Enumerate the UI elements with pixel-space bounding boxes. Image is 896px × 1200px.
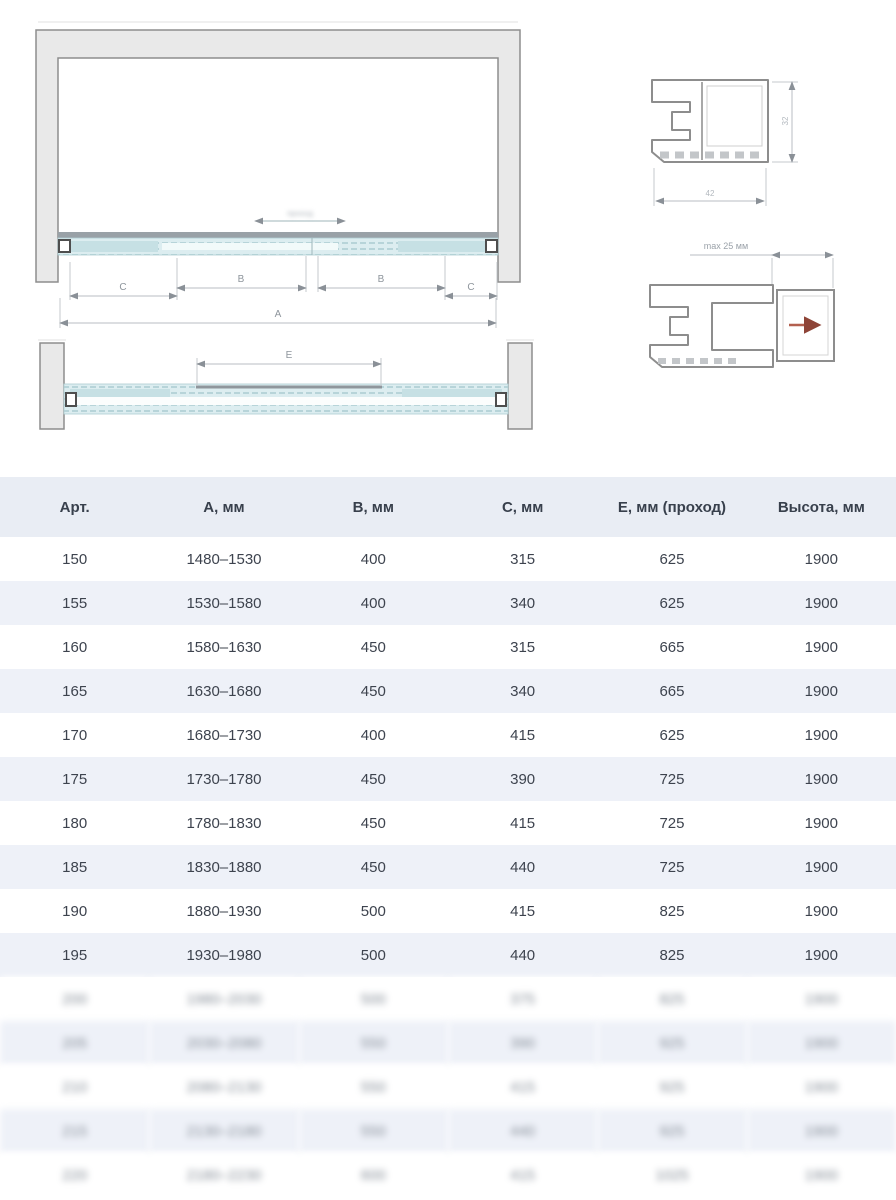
table-cell: 500 xyxy=(299,933,448,977)
header-c: С, мм xyxy=(448,477,597,537)
table-cell: 1900 xyxy=(747,1153,896,1197)
table-cell: 1980–2030 xyxy=(149,977,298,1021)
table-cell: 205 xyxy=(0,1021,149,1065)
table-cell: 450 xyxy=(299,801,448,845)
table-cell: 1900 xyxy=(747,713,896,757)
table-cell: 440 xyxy=(448,1109,597,1153)
table-cell: 415 xyxy=(448,1153,597,1197)
obscured-dimension-label: проход xyxy=(287,209,313,218)
profile-section-main: 32 42 xyxy=(652,80,798,206)
table-cell: 825 xyxy=(597,977,746,1021)
end-bracket-right xyxy=(486,240,497,252)
fixed-glass-right xyxy=(398,241,494,252)
table-cell: 415 xyxy=(448,801,597,845)
table-cell: 1900 xyxy=(747,669,896,713)
dim-profile-width-label: 42 xyxy=(706,189,715,198)
top-rail xyxy=(58,232,498,238)
table-row: 1951930–19805004408251900 xyxy=(0,933,896,977)
table-cell: 1530–1580 xyxy=(149,581,298,625)
table-cell: 665 xyxy=(597,625,746,669)
dim-c-left-label: С xyxy=(119,282,126,293)
e-extension-ticks xyxy=(197,358,381,386)
table-cell: 625 xyxy=(597,713,746,757)
table-cell: 725 xyxy=(597,801,746,845)
table-cell: 725 xyxy=(597,845,746,889)
table-row: 1651630–16804503406651900 xyxy=(0,669,896,713)
table-cell: 400 xyxy=(299,537,448,581)
header-b: В, мм xyxy=(299,477,448,537)
table-cell: 415 xyxy=(448,1065,597,1109)
table-row: 2052030–20805503909251900 xyxy=(0,1021,896,1065)
table-row: 1601580–16304503156651900 xyxy=(0,625,896,669)
table-cell: 1900 xyxy=(747,801,896,845)
table-cell: 450 xyxy=(299,625,448,669)
table-row: 1901880–19305004158251900 xyxy=(0,889,896,933)
table-cell: 340 xyxy=(448,581,597,625)
table-cell: 725 xyxy=(597,757,746,801)
table-cell: 1880–1930 xyxy=(149,889,298,933)
table-row: 2202180–223060041510251900 xyxy=(0,1153,896,1197)
table-cell: 925 xyxy=(597,1065,746,1109)
table-cell: 1680–1730 xyxy=(149,713,298,757)
table-cell: 1900 xyxy=(747,1065,896,1109)
table-cell: 925 xyxy=(597,1109,746,1153)
table-cell: 315 xyxy=(448,625,597,669)
table-cell: 825 xyxy=(597,889,746,933)
table-cell: 450 xyxy=(299,845,448,889)
table-cell: 1630–1680 xyxy=(149,669,298,713)
size-table: Арт. А, мм В, мм С, мм Е, мм (проход) Вы… xyxy=(0,477,896,1197)
table-row: 2152130–21805504409251900 xyxy=(0,1109,896,1153)
table-cell: 1900 xyxy=(747,889,896,933)
technical-drawing-area: проход С В В С xyxy=(0,0,896,477)
header-e: Е, мм (проход) xyxy=(597,477,746,537)
table-cell: 200 xyxy=(0,977,149,1021)
wall-stub-right xyxy=(508,343,532,429)
table-cell: 1580–1630 xyxy=(149,625,298,669)
dim-b-right-label: В xyxy=(378,274,385,285)
fixed-panel-right-plan xyxy=(402,389,502,397)
glass-gap xyxy=(72,397,500,405)
table-cell: 1480–1530 xyxy=(149,537,298,581)
table-cell: 500 xyxy=(299,889,448,933)
table-cell: 1900 xyxy=(747,933,896,977)
dim-profile-height-label: 32 xyxy=(781,116,790,125)
table-cell: 195 xyxy=(0,933,149,977)
table-cell: 2030–2080 xyxy=(149,1021,298,1065)
table-cell: 160 xyxy=(0,625,149,669)
table-cell: 170 xyxy=(0,713,149,757)
wall-stub-left xyxy=(40,343,64,429)
table-cell: 1025 xyxy=(597,1153,746,1197)
table-cell: 315 xyxy=(448,537,597,581)
table-cell: 550 xyxy=(299,1021,448,1065)
size-table-header: Арт. А, мм В, мм С, мм Е, мм (проход) Вы… xyxy=(0,477,896,537)
fixed-panel-left-plan xyxy=(70,389,170,397)
table-cell: 1900 xyxy=(747,1109,896,1153)
table-row: 2001980–20305003758251900 xyxy=(0,977,896,1021)
table-cell: 340 xyxy=(448,669,597,713)
table-cell: 1780–1830 xyxy=(149,801,298,845)
table-cell: 150 xyxy=(0,537,149,581)
table-cell: 1830–1880 xyxy=(149,845,298,889)
table-cell: 625 xyxy=(597,537,746,581)
table-cell: 450 xyxy=(299,669,448,713)
table-cell: 450 xyxy=(299,757,448,801)
table-cell: 665 xyxy=(597,669,746,713)
table-cell: 190 xyxy=(0,889,149,933)
table-row: 1501480–15304003156251900 xyxy=(0,537,896,581)
table-cell: 1900 xyxy=(747,537,896,581)
table-cell: 925 xyxy=(597,1021,746,1065)
dim-b-left-label: В xyxy=(238,274,245,285)
table-cell: 2080–2130 xyxy=(149,1065,298,1109)
table-cell: 825 xyxy=(597,933,746,977)
table-cell: 175 xyxy=(0,757,149,801)
table-cell: 375 xyxy=(448,977,597,1021)
front-view-drawing: проход С В В С xyxy=(36,22,520,328)
header-art: Арт. xyxy=(0,477,149,537)
table-cell: 185 xyxy=(0,845,149,889)
drawings-svg: проход С В В С xyxy=(0,0,896,477)
profile-section-adjustable: max 25 мм xyxy=(650,241,834,367)
table-cell: 1900 xyxy=(747,977,896,1021)
table-cell: 1730–1780 xyxy=(149,757,298,801)
table-cell: 550 xyxy=(299,1109,448,1153)
header-height: Высота, мм xyxy=(747,477,896,537)
table-cell: 1900 xyxy=(747,757,896,801)
table-row: 1801780–18304504157251900 xyxy=(0,801,896,845)
table-cell: 415 xyxy=(448,889,597,933)
table-cell: 1900 xyxy=(747,625,896,669)
table-cell: 500 xyxy=(299,977,448,1021)
table-cell: 1900 xyxy=(747,581,896,625)
wall-profile-outline xyxy=(652,80,768,162)
table-row: 1701680–17304004156251900 xyxy=(0,713,896,757)
dim-c-right-label: С xyxy=(467,282,474,293)
plan-bracket-left xyxy=(66,393,76,406)
table-cell: 550 xyxy=(299,1065,448,1109)
table-cell: 390 xyxy=(448,757,597,801)
table-cell: 415 xyxy=(448,713,597,757)
end-bracket-left xyxy=(59,240,70,252)
table-cell: 600 xyxy=(299,1153,448,1197)
table-cell: 180 xyxy=(0,801,149,845)
table-cell: 220 xyxy=(0,1153,149,1197)
table-cell: 165 xyxy=(0,669,149,713)
dim-a-label: А xyxy=(275,309,282,320)
size-table-body: 1501480–153040031562519001551530–1580400… xyxy=(0,537,896,1197)
table-cell: 2180–2230 xyxy=(149,1153,298,1197)
table-row: 1751730–17804503907251900 xyxy=(0,757,896,801)
top-view-drawing: Е xyxy=(38,340,534,429)
table-cell: 1930–1980 xyxy=(149,933,298,977)
table-row: 2102080–21305504159251900 xyxy=(0,1065,896,1109)
table-cell: 1900 xyxy=(747,845,896,889)
table-cell: 400 xyxy=(299,713,448,757)
adjust-dim-label: max 25 мм xyxy=(704,241,748,251)
table-cell: 625 xyxy=(597,581,746,625)
table-cell: 390 xyxy=(448,1021,597,1065)
fixed-glass-left xyxy=(62,241,158,252)
plan-bracket-right xyxy=(496,393,506,406)
table-row: 1551530–15804003406251900 xyxy=(0,581,896,625)
adjust-dim-extensions xyxy=(772,258,833,288)
table-cell: 2130–2180 xyxy=(149,1109,298,1153)
wall-profile-open-outline xyxy=(650,285,773,367)
table-cell: 155 xyxy=(0,581,149,625)
dim-e-label: Е xyxy=(286,350,293,361)
table-cell: 400 xyxy=(299,581,448,625)
table-row: 1851830–18804504407251900 xyxy=(0,845,896,889)
table-cell: 1900 xyxy=(747,1021,896,1065)
table-cell: 440 xyxy=(448,933,597,977)
table-cell: 215 xyxy=(0,1109,149,1153)
table-cell: 210 xyxy=(0,1065,149,1109)
header-a: А, мм xyxy=(149,477,298,537)
table-cell: 440 xyxy=(448,845,597,889)
